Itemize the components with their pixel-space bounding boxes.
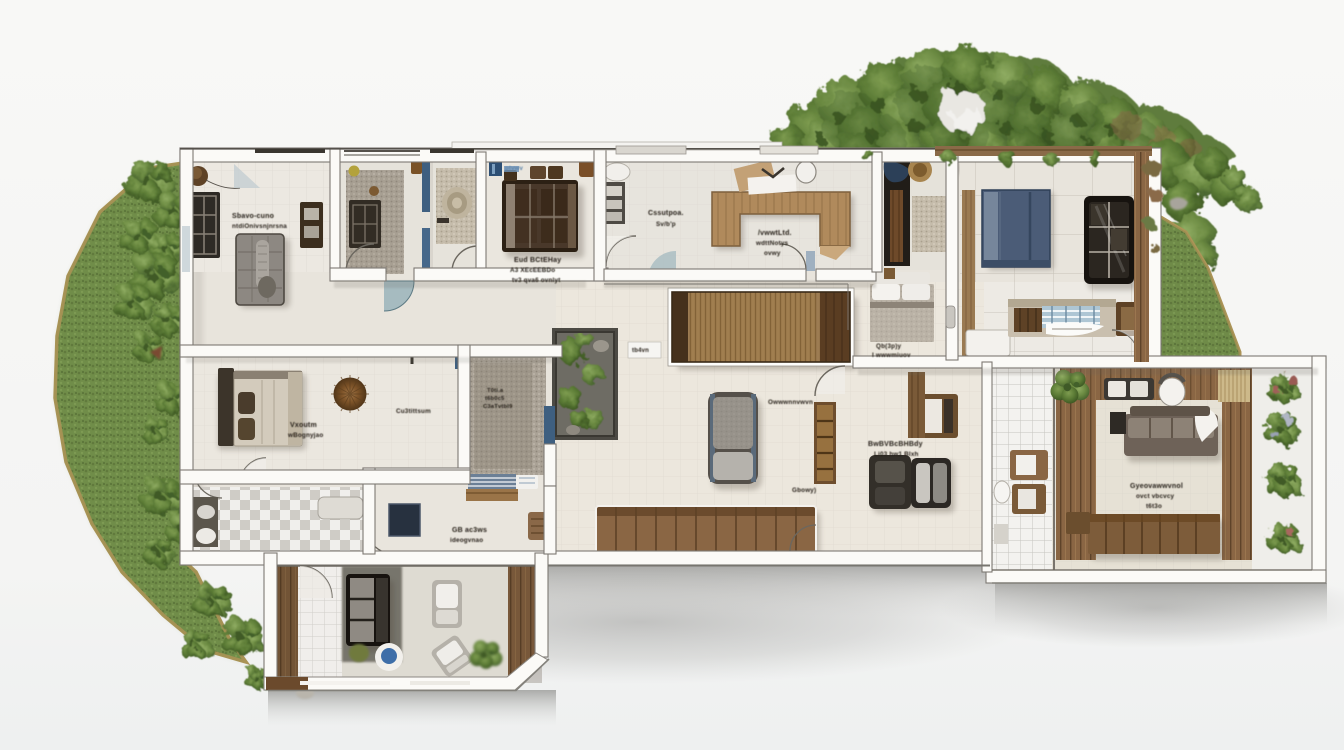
svg-text:BwBVBcBHBdy: BwBVBcBHBdy [868, 441, 923, 448]
svg-text:wBognyjao: wBognyjao [287, 432, 323, 439]
svg-text:Cu3tittsum: Cu3tittsum [396, 408, 431, 415]
svg-text:Cssutpoa.: Cssutpoa. [648, 210, 684, 217]
svg-text:T0ti.a: T0ti.a [487, 388, 504, 394]
svg-text:ptvwv: ptvwv [505, 166, 523, 172]
svg-text:Vxoutm: Vxoutm [290, 422, 317, 429]
svg-text:I wwwmiuov: I wwwmiuov [872, 352, 911, 359]
svg-text:Li03 hw1 Blxh: Li03 hw1 Blxh [874, 451, 919, 458]
svg-text:Eud BCtEHay: Eud BCtEHay [514, 257, 561, 264]
svg-text:Gyeovawwvnol: Gyeovawwvnol [1130, 483, 1183, 490]
svg-text:Gbowy): Gbowy) [792, 487, 816, 494]
svg-text:Sbavo-cuno: Sbavo-cuno [232, 213, 274, 220]
svg-text:t6b0c5: t6b0c5 [485, 396, 505, 402]
svg-text:C3aTvtbl9: C3aTvtbl9 [483, 404, 513, 410]
svg-text:ovct vbcvcy: ovct vbcvcy [1136, 493, 1175, 500]
svg-text:Sv/b'p: Sv/b'p [656, 221, 676, 228]
svg-text:ntdiOnivsnjnrsna: ntdiOnivsnjnrsna [232, 223, 287, 230]
svg-text:ovwy: ovwy [764, 250, 781, 257]
svg-text:t6t3o: t6t3o [1146, 503, 1162, 510]
svg-text:/vwwtLtd.: /vwwtLtd. [758, 230, 792, 237]
svg-text:Owwwnnvwvn: Owwwnnvwvn [768, 399, 813, 406]
svg-text:wdttNotys: wdttNotys [755, 240, 789, 247]
svg-text:tb4vn: tb4vn [632, 348, 649, 354]
svg-text:Qb(3p)y: Qb(3p)y [876, 343, 901, 350]
svg-text:tv3 qva6 ovnlyt: tv3 qva6 ovnlyt [512, 277, 561, 284]
svg-text:ideogvnao: ideogvnao [450, 537, 483, 544]
svg-text:GB ac3ws: GB ac3ws [452, 527, 487, 534]
svg-text:A3 XEcEEBDo: A3 XEcEEBDo [510, 267, 555, 274]
